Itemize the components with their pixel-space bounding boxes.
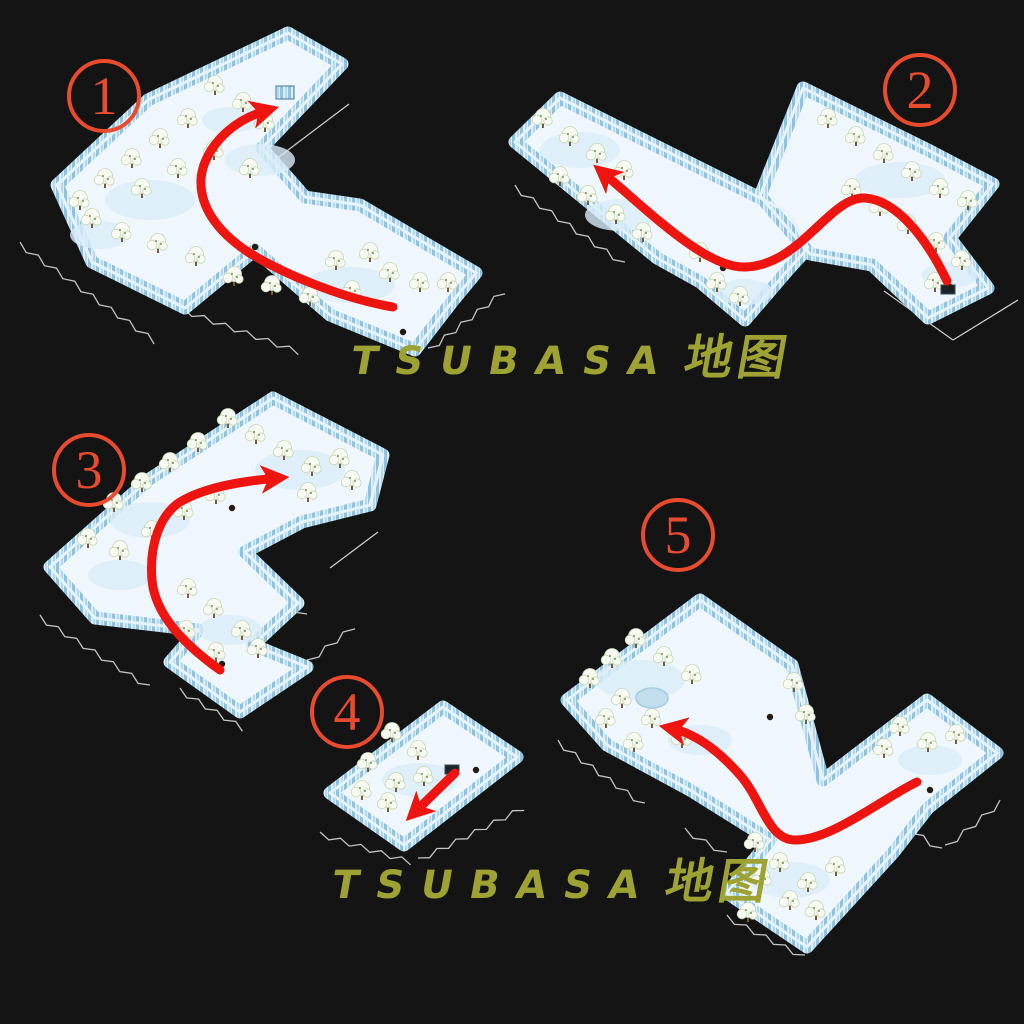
map-2-number: 2 xyxy=(907,63,934,117)
map-5-number: 5 xyxy=(665,508,692,562)
snow-patch xyxy=(898,745,962,775)
watermark-top: TSUBASA 地图 xyxy=(348,334,796,382)
map-5-badge: 5 xyxy=(641,498,715,572)
map-1-badge: 1 xyxy=(67,59,141,133)
map-1-outline-shadow xyxy=(183,308,298,355)
map-5-outline-shadow xyxy=(685,828,727,852)
tree-icon xyxy=(744,833,764,853)
map-1-number: 1 xyxy=(91,69,118,123)
map-3-outline-shadow xyxy=(330,532,378,568)
snow-patch xyxy=(88,560,152,590)
watermark-latin-text: TSUBASA xyxy=(328,863,659,908)
map-3-outline-shadow xyxy=(307,629,355,660)
map-object xyxy=(473,767,479,773)
signboard-structure xyxy=(276,86,294,99)
snow-patch xyxy=(105,180,195,220)
map-4-number: 4 xyxy=(334,685,361,739)
map-object xyxy=(927,787,933,793)
map-3-badge: 3 xyxy=(52,433,126,507)
frozen-pond xyxy=(636,688,668,708)
watermark-latin-text: TSUBASA xyxy=(347,339,678,384)
map-object xyxy=(767,714,773,720)
tree-icon xyxy=(625,629,645,649)
map-5-outline-shadow xyxy=(945,800,1000,845)
watermark-cjk-text: 地图 xyxy=(661,854,777,910)
watermark-bottom: TSUBASA 地图 xyxy=(329,858,777,906)
watermark-cjk-text: 地图 xyxy=(680,330,796,386)
map-2 xyxy=(515,88,1018,340)
tree-icon xyxy=(381,723,401,743)
map-guide-canvas: 1 2 3 4 5 TSUBASA 地图 TSUBASA 地图 xyxy=(0,0,1024,1024)
map-2-badge: 2 xyxy=(883,53,957,127)
map-3-number: 3 xyxy=(76,443,103,497)
tree-icon xyxy=(261,276,281,296)
snow-patch xyxy=(540,132,620,168)
map-object xyxy=(229,505,235,511)
map-4-badge: 4 xyxy=(310,675,384,749)
map-object xyxy=(252,244,258,250)
snow-patch xyxy=(225,144,295,176)
